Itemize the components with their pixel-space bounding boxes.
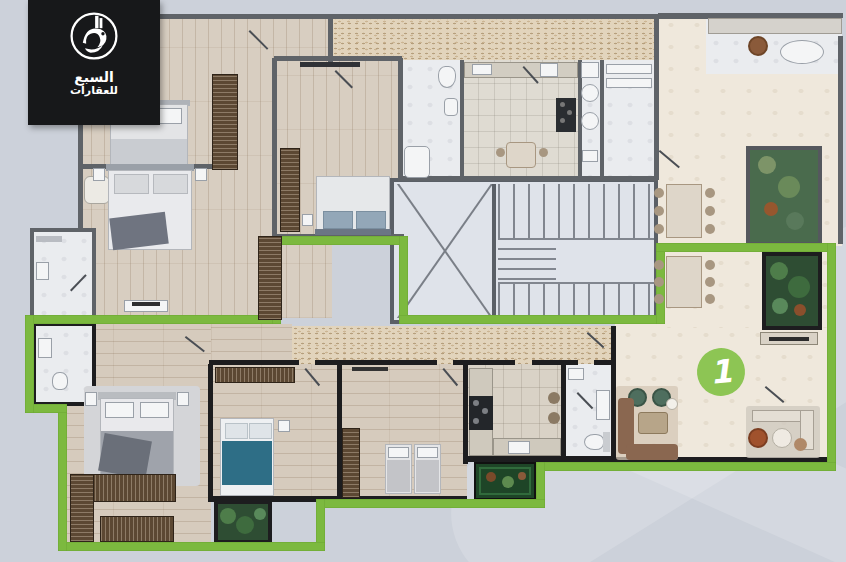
chair bbox=[705, 294, 715, 304]
shelf bbox=[581, 62, 599, 78]
wall bbox=[272, 58, 277, 238]
burner bbox=[567, 110, 572, 115]
plant-pot bbox=[794, 304, 806, 316]
oval-tub bbox=[780, 40, 824, 64]
wall bbox=[208, 364, 213, 502]
unit1-balcony-right bbox=[762, 252, 822, 330]
bathtub bbox=[404, 146, 430, 178]
plant bbox=[772, 298, 788, 314]
tv bbox=[352, 367, 388, 371]
cabinet bbox=[596, 390, 610, 420]
wall bbox=[315, 360, 437, 365]
brand-logo: السبع للعقارات bbox=[28, 0, 160, 125]
closet-shelf bbox=[606, 78, 652, 88]
bed bbox=[316, 176, 390, 234]
towel-rail bbox=[36, 236, 62, 242]
wall bbox=[274, 56, 402, 61]
round-tub bbox=[581, 112, 599, 130]
sink bbox=[582, 150, 598, 162]
sink bbox=[444, 98, 458, 116]
pillow bbox=[417, 447, 438, 458]
sofa bbox=[626, 444, 678, 460]
unit1-foyer-wood bbox=[211, 324, 292, 364]
bed bbox=[220, 418, 274, 496]
throw-blanket bbox=[109, 212, 168, 251]
coffee-table bbox=[638, 412, 668, 434]
chair bbox=[705, 206, 715, 216]
chair bbox=[654, 188, 664, 198]
burner bbox=[560, 102, 565, 107]
logo-text-line1: السبع bbox=[28, 70, 160, 85]
unit-outline-segment bbox=[399, 315, 665, 324]
toilet bbox=[438, 66, 456, 88]
kitchen-table bbox=[506, 142, 536, 168]
unit-outline-segment bbox=[25, 315, 34, 413]
unit-outline-segment bbox=[827, 243, 836, 471]
bed bbox=[100, 398, 174, 478]
pillow bbox=[105, 402, 134, 418]
round-tub bbox=[581, 84, 599, 102]
wall bbox=[328, 14, 333, 62]
dining-table bbox=[666, 256, 702, 308]
dining-table bbox=[666, 184, 702, 238]
kitchen-sink bbox=[508, 441, 530, 454]
wardrobe bbox=[212, 74, 238, 170]
vanity-counter bbox=[708, 18, 842, 34]
wall bbox=[398, 176, 658, 181]
plant bbox=[778, 176, 800, 198]
wall bbox=[611, 326, 616, 364]
unit-outline-segment bbox=[316, 499, 545, 508]
nightstand bbox=[302, 214, 313, 226]
wall bbox=[654, 14, 659, 180]
balcony-bench bbox=[760, 332, 818, 345]
bed bbox=[414, 444, 441, 494]
stove bbox=[556, 98, 576, 132]
chair bbox=[654, 224, 664, 234]
bed bbox=[385, 444, 412, 494]
unit1-balcony-bottom bbox=[214, 500, 272, 544]
nightstand bbox=[93, 168, 105, 181]
unit-number: 1 bbox=[708, 352, 734, 392]
logo-text-line2: للعقارات bbox=[28, 85, 160, 97]
unit1-patterned-balcony bbox=[474, 462, 536, 500]
chair bbox=[705, 260, 715, 270]
nightstand bbox=[195, 168, 207, 181]
wall bbox=[209, 360, 299, 365]
pillow bbox=[249, 423, 272, 439]
stair-core bbox=[390, 178, 658, 324]
burner bbox=[482, 408, 488, 414]
burner bbox=[473, 418, 479, 424]
stove bbox=[469, 396, 493, 430]
round-table bbox=[772, 428, 792, 448]
chair bbox=[654, 260, 664, 270]
plant bbox=[254, 508, 266, 520]
pillow bbox=[114, 174, 149, 194]
armchair bbox=[794, 438, 807, 451]
plant bbox=[236, 516, 254, 534]
nightstand bbox=[278, 420, 290, 432]
armchair bbox=[748, 428, 768, 448]
chair bbox=[539, 148, 548, 157]
wall bbox=[463, 364, 468, 464]
burner bbox=[473, 400, 479, 406]
pillow bbox=[225, 423, 248, 439]
unit-outline-segment bbox=[656, 243, 836, 252]
nightstand bbox=[177, 392, 189, 406]
wall bbox=[838, 36, 843, 244]
wall bbox=[561, 364, 566, 460]
wall bbox=[155, 14, 715, 19]
blanket bbox=[111, 139, 187, 165]
wall bbox=[460, 60, 464, 180]
chair bbox=[705, 224, 715, 234]
pillow bbox=[323, 211, 353, 229]
plant bbox=[786, 212, 804, 230]
chair bbox=[496, 148, 505, 157]
chair bbox=[654, 294, 664, 304]
blanket bbox=[222, 441, 272, 485]
sink bbox=[36, 262, 49, 280]
unit-outline-segment bbox=[536, 462, 836, 471]
unit-outline-segment bbox=[399, 236, 408, 324]
sink bbox=[568, 368, 584, 380]
toilet bbox=[584, 434, 604, 450]
chair bbox=[548, 412, 560, 424]
sink bbox=[38, 338, 52, 358]
fridge bbox=[540, 63, 558, 77]
wardrobe bbox=[215, 367, 295, 383]
rug-motif bbox=[502, 476, 514, 488]
throw-blanket bbox=[98, 433, 152, 479]
tv bbox=[300, 62, 360, 67]
chair bbox=[548, 392, 560, 404]
headboard bbox=[315, 229, 391, 235]
bench-slot bbox=[769, 337, 809, 341]
chair bbox=[705, 277, 715, 287]
unit-outline-segment bbox=[58, 542, 325, 551]
bed bbox=[108, 170, 192, 250]
unit-outline-segment bbox=[272, 236, 408, 245]
chair bbox=[654, 277, 664, 287]
plant-pot bbox=[764, 202, 778, 216]
toilet-tank bbox=[603, 432, 610, 452]
unit-outline-segment bbox=[58, 404, 67, 551]
nightstand bbox=[85, 392, 97, 406]
wall bbox=[600, 60, 604, 180]
blanket bbox=[387, 460, 410, 492]
wardrobe bbox=[70, 474, 94, 542]
plant bbox=[758, 156, 776, 174]
plant bbox=[770, 262, 788, 280]
wall bbox=[532, 360, 578, 365]
wardrobe bbox=[342, 428, 360, 498]
pillow bbox=[153, 174, 188, 194]
rug-motif bbox=[518, 472, 526, 480]
plant bbox=[788, 276, 810, 298]
pillow bbox=[388, 447, 409, 458]
plant bbox=[220, 508, 236, 524]
chair bbox=[705, 188, 715, 198]
stairs-side-steps bbox=[498, 240, 556, 280]
tv bbox=[132, 302, 160, 306]
chair bbox=[654, 206, 664, 216]
kitchen-sink bbox=[472, 64, 492, 75]
falcon-emblem-icon bbox=[66, 8, 122, 64]
pillow bbox=[356, 211, 386, 229]
unit-outline-segment bbox=[25, 315, 280, 324]
stairs-upper-flight bbox=[498, 184, 654, 240]
side-table bbox=[666, 398, 678, 410]
burner bbox=[560, 118, 565, 123]
closet-shelf bbox=[606, 64, 652, 74]
pillow bbox=[140, 402, 169, 418]
wardrobe bbox=[100, 516, 174, 542]
wall bbox=[398, 58, 403, 180]
wardrobe bbox=[280, 148, 300, 232]
wash-bowl bbox=[748, 36, 768, 56]
blanket bbox=[416, 460, 439, 492]
floor-plan-canvas: 1 السبع للعقارات bbox=[0, 0, 846, 562]
rug-motif bbox=[486, 472, 496, 482]
elevator-shaft bbox=[396, 184, 496, 318]
wardrobe bbox=[258, 236, 282, 320]
toilet bbox=[52, 372, 68, 390]
upper-balcony bbox=[746, 146, 822, 246]
